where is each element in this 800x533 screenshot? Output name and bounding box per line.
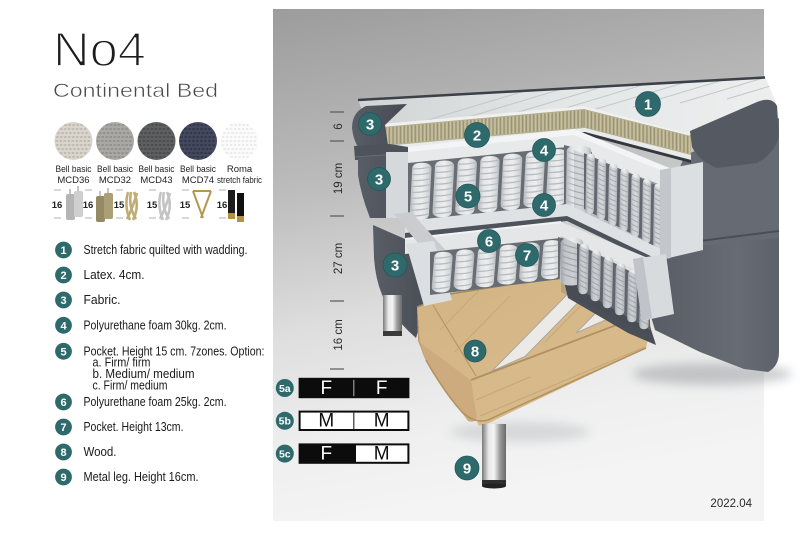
svg-text:2022.04: 2022.04 [710,498,752,510]
svg-text:Bell basic: Bell basic [97,164,133,175]
svg-text:M: M [374,443,390,464]
svg-text:M: M [318,411,334,432]
svg-text:Wood.: Wood. [84,444,117,459]
svg-text:5c: 5c [279,448,291,460]
svg-text:c. Firm/ medium: c. Firm/ medium [93,378,168,393]
svg-text:F: F [320,443,332,464]
svg-text:1: 1 [644,96,652,113]
svg-text:16: 16 [83,200,94,211]
svg-text:3: 3 [366,116,374,133]
svg-text:F: F [376,378,388,399]
svg-text:6: 6 [60,397,66,409]
svg-text:3: 3 [60,295,66,307]
svg-text:Roma: Roma [227,164,253,175]
svg-text:3: 3 [375,171,383,188]
svg-text:6: 6 [485,233,493,250]
svg-text:19 cm: 19 cm [333,163,345,194]
svg-text:4: 4 [540,197,549,214]
svg-text:15: 15 [147,200,158,211]
svg-text:Bell basic: Bell basic [180,164,216,175]
svg-text:4: 4 [540,142,549,159]
svg-text:9: 9 [60,472,66,484]
svg-text:1: 1 [60,245,66,257]
svg-text:7: 7 [523,247,531,264]
svg-text:No4: No4 [53,24,146,77]
svg-text:2: 2 [60,270,66,282]
svg-text:Latex. 4cm.: Latex. 4cm. [84,267,145,282]
svg-text:MCD36: MCD36 [57,175,89,186]
svg-text:6: 6 [333,123,345,129]
svg-text:5: 5 [464,188,472,205]
svg-text:Polyurethane foam 30kg. 2cm.: Polyurethane foam 30kg. 2cm. [84,317,227,332]
svg-text:27 cm: 27 cm [333,243,345,274]
svg-text:F: F [320,378,332,399]
svg-text:4: 4 [60,320,67,332]
svg-text:Metal leg. Height 16cm.: Metal leg. Height 16cm. [84,469,199,484]
svg-text:Stretch fabric quilted with wa: Stretch fabric quilted with wadding. [84,242,248,257]
svg-text:16 cm: 16 cm [333,319,345,350]
svg-text:15: 15 [180,200,191,211]
svg-text:Bell basic: Bell basic [139,164,175,175]
svg-text:Fabric.: Fabric. [84,292,121,307]
svg-text:16: 16 [217,200,228,211]
svg-text:8: 8 [60,447,66,459]
svg-text:15: 15 [114,200,125,211]
svg-text:7: 7 [60,422,66,434]
svg-text:5a: 5a [279,383,291,395]
svg-text:MCD43: MCD43 [140,175,172,186]
svg-text:9: 9 [463,460,471,477]
svg-text:8: 8 [471,343,479,360]
svg-text:3: 3 [391,257,399,274]
svg-text:5b: 5b [279,416,291,428]
svg-text:16: 16 [52,200,63,211]
svg-text:Continental Bed: Continental Bed [53,80,218,102]
svg-text:Polyurethane foam 25kg. 2cm.: Polyurethane foam 25kg. 2cm. [84,394,227,409]
svg-text:Pocket. Height 13cm.: Pocket. Height 13cm. [84,419,184,434]
svg-text:MCD32: MCD32 [99,175,131,186]
svg-text:5: 5 [60,346,66,358]
svg-text:Bell basic: Bell basic [56,164,92,175]
svg-text:stretch fabric: stretch fabric [217,175,262,186]
svg-text:M: M [374,411,390,432]
svg-text:2: 2 [473,127,481,144]
svg-text:MCD74: MCD74 [182,175,214,186]
